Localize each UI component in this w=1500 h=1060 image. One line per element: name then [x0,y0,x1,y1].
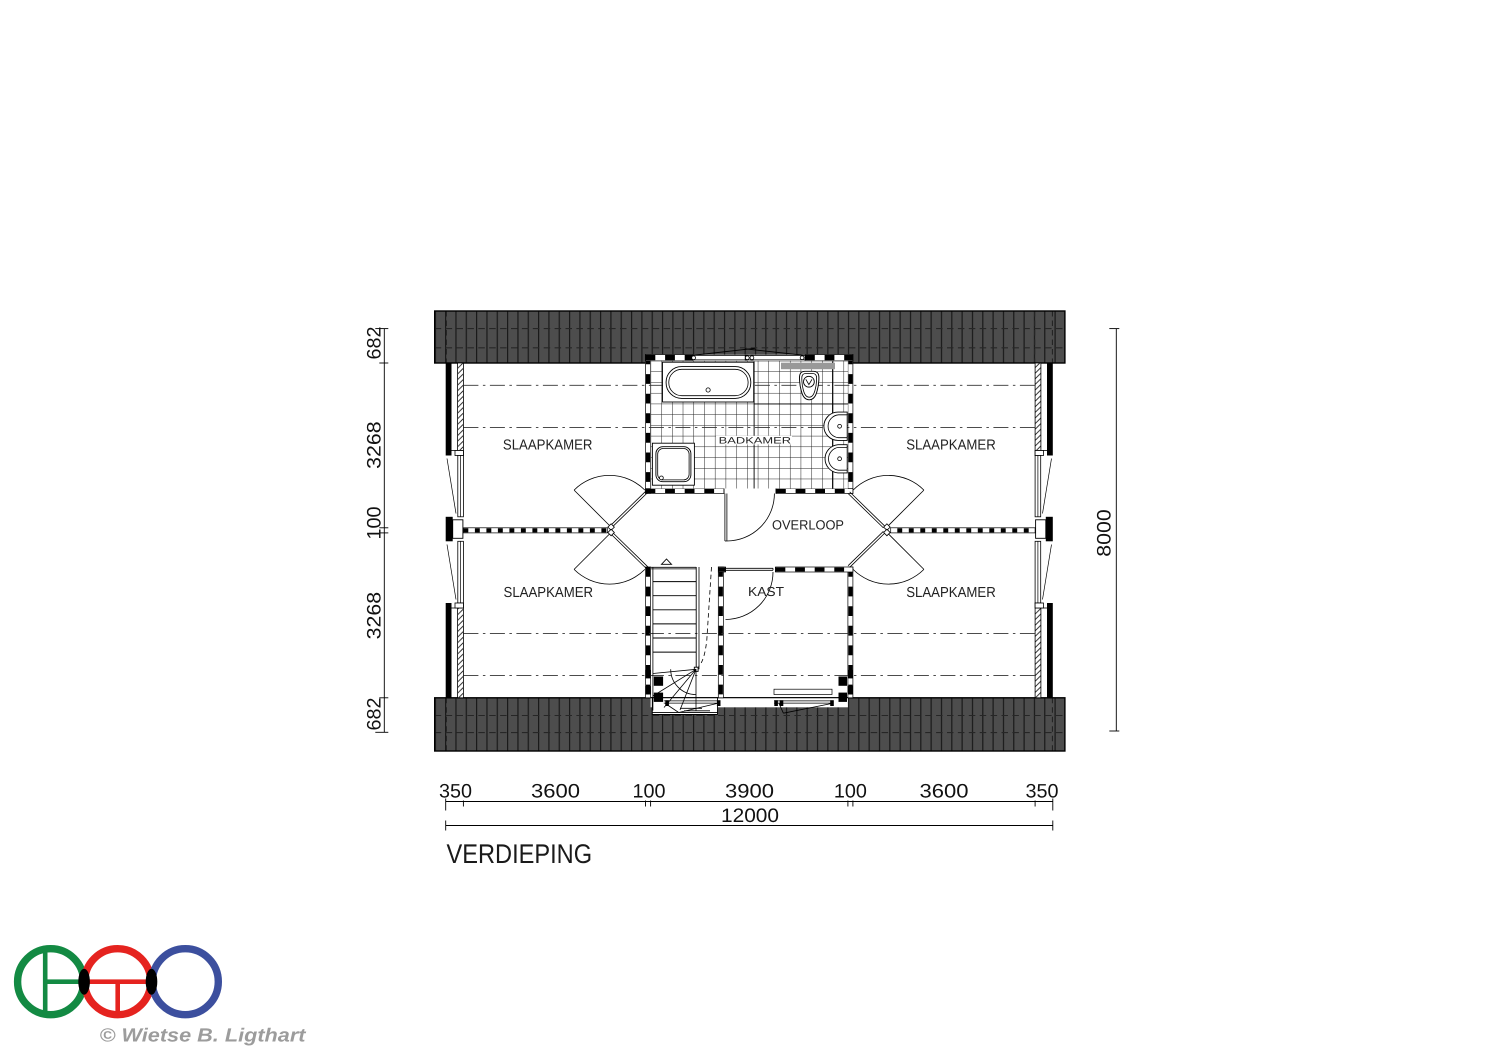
svg-text:SLAAPKAMER: SLAAPKAMER [906,438,996,454]
svg-text:682: 682 [364,698,386,731]
svg-text:100: 100 [633,781,666,803]
svg-text:3268: 3268 [364,592,386,640]
svg-text:350: 350 [439,781,472,803]
svg-text:SLAAPKAMER: SLAAPKAMER [503,438,593,454]
svg-text:350: 350 [1026,781,1059,803]
svg-text:VERDIEPING: VERDIEPING [447,839,593,869]
svg-text:3268: 3268 [364,421,386,469]
svg-text:12000: 12000 [721,805,779,827]
svg-text:3600: 3600 [920,781,969,803]
svg-text:SLAAPKAMER: SLAAPKAMER [504,585,594,601]
svg-text:100: 100 [834,781,867,803]
svg-text:© Wietse B. Ligthart: © Wietse B. Ligthart [100,1026,307,1047]
svg-text:SLAAPKAMER: SLAAPKAMER [906,585,996,601]
svg-text:OVERLOOP: OVERLOOP [772,517,844,532]
svg-text:8000: 8000 [1094,509,1116,557]
svg-text:BADKAMER: BADKAMER [719,435,792,445]
svg-text:KAST: KAST [748,584,784,599]
svg-text:100: 100 [364,506,386,539]
svg-text:3900: 3900 [725,781,774,803]
svg-text:3600: 3600 [531,781,580,803]
svg-text:682: 682 [364,327,386,360]
